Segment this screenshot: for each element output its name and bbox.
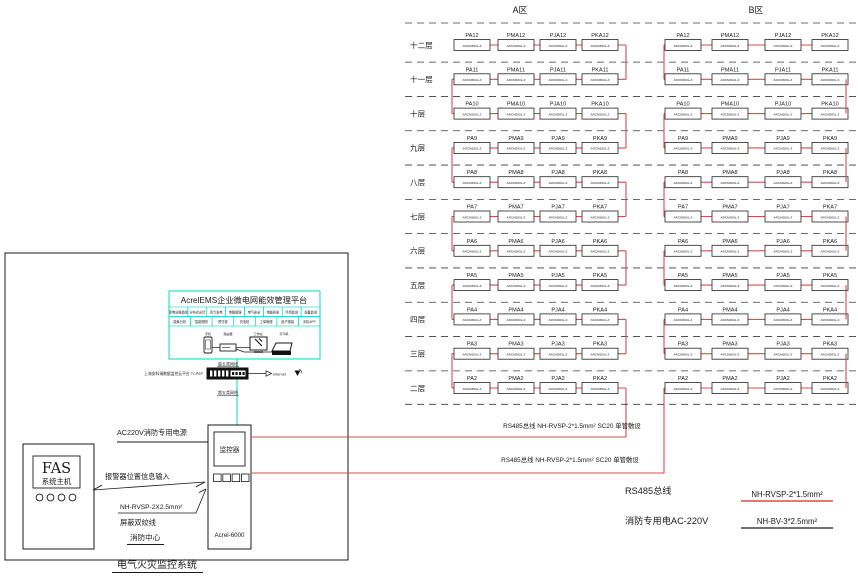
device-model-label: ARCM300L-Z bbox=[821, 250, 840, 254]
device-model-label: ARCM300L-Z bbox=[591, 181, 610, 185]
device-label: PKA2 bbox=[823, 376, 837, 382]
device-model-label: ARCM300L-Z bbox=[463, 181, 482, 185]
left-system: 电气火灾监控系统 AcrelEMS企业微电网能效管理平台 变电运维监控分布式光伏… bbox=[5, 253, 348, 573]
module-label: 工单管理 bbox=[260, 319, 274, 324]
printer-icon bbox=[272, 343, 292, 351]
device-model-label: ARCM300L-Z bbox=[463, 215, 482, 219]
device-model-label: ARCM300L-Z bbox=[507, 215, 526, 219]
device-model-label: ARCM300L-Z bbox=[721, 147, 740, 151]
device-label: PMA6 bbox=[722, 239, 737, 245]
device-label: PJA11 bbox=[550, 67, 566, 73]
module-label: 手机APP bbox=[303, 319, 316, 324]
module-label: 智能照明 bbox=[195, 319, 208, 324]
device-label: PJA7 bbox=[776, 205, 789, 211]
floor-label: 十层 bbox=[410, 108, 426, 118]
device-model-label: ARCM300L-Z bbox=[591, 387, 610, 391]
bus1-label: RS485总线 NH-RVSP-2*1.5mm² SC20 单管敷设 bbox=[503, 421, 641, 430]
device-label: PA4 bbox=[467, 307, 477, 313]
platform-devices: 手机路由器工作站打印机 bbox=[204, 331, 292, 355]
device-model-label: ARCM300L-Z bbox=[507, 44, 526, 48]
device-model-label: ARCM300L-Z bbox=[507, 112, 526, 116]
indicator-circle-icon bbox=[36, 494, 43, 501]
device-label: PKA5 bbox=[823, 273, 837, 279]
device-label: PMA10 bbox=[507, 102, 525, 108]
platform-device-label: 手机 bbox=[205, 331, 211, 336]
device-label: PKA11 bbox=[822, 67, 839, 73]
device-model-label: ARCM300L-Z bbox=[463, 44, 482, 48]
device-label: PJA3 bbox=[776, 342, 789, 348]
legend-power-label: 消防专用电AC-220V bbox=[625, 515, 709, 526]
device-label: PJA4 bbox=[776, 307, 789, 313]
device-model-label: ARCM300L-Z bbox=[674, 147, 693, 151]
wifi-icon bbox=[295, 369, 303, 376]
device-model-label: ARCM300L-Z bbox=[591, 215, 610, 219]
device-label: PJA12 bbox=[775, 33, 791, 39]
device-label: PA10 bbox=[676, 102, 689, 108]
device-model-label: ARCM300L-Z bbox=[463, 112, 482, 116]
device-label: PKA3 bbox=[823, 342, 837, 348]
device-model-label: ARCM300L-Z bbox=[507, 250, 526, 254]
device-model-label: ARCM300L-Z bbox=[507, 147, 526, 151]
device-label: PKA6 bbox=[823, 239, 837, 245]
device-model-label: ARCM300L-Z bbox=[821, 353, 840, 357]
device-label: PA11 bbox=[466, 67, 479, 73]
device-model-label: ARCM300L-Z bbox=[721, 284, 740, 288]
device-model-label: ARCM300L-Z bbox=[721, 318, 740, 322]
device-model-label: ARCM300L-Z bbox=[591, 250, 610, 254]
device-label: PMA10 bbox=[721, 102, 739, 108]
switch-port-icon bbox=[218, 371, 220, 377]
module-label: 设备监测 bbox=[304, 310, 317, 315]
device-label: PKA7 bbox=[823, 205, 837, 211]
cable-label-top: 超五类网线 bbox=[218, 361, 238, 367]
module-label: 预付费 bbox=[218, 319, 228, 324]
device-label: PA7 bbox=[467, 205, 477, 211]
device-model-label: ARCM300L-Z bbox=[774, 387, 793, 391]
device-label: PMA8 bbox=[722, 170, 737, 176]
device-model-label: ARCM300L-Z bbox=[674, 78, 693, 82]
device-label: PKA8 bbox=[823, 170, 837, 176]
device-label: PMA5 bbox=[722, 273, 737, 279]
floor-label: 六层 bbox=[410, 246, 426, 256]
device-model-label: ARCM300L-Z bbox=[821, 112, 840, 116]
device-label: PA3 bbox=[467, 342, 477, 348]
device-label: PKA5 bbox=[593, 273, 607, 279]
floor-label: 三层 bbox=[410, 350, 426, 359]
legend-power-cable-label: NH-BV-3*2.5mm² bbox=[757, 517, 818, 526]
device-label: PA7 bbox=[678, 205, 688, 211]
floor-label: 五层 bbox=[410, 281, 426, 290]
device-model-label: ARCM300L-Z bbox=[821, 284, 840, 288]
device-label: PMA9 bbox=[508, 136, 523, 142]
device-label: PKA9 bbox=[593, 136, 607, 142]
device-label: PMA2 bbox=[508, 376, 523, 382]
device-label: PMA5 bbox=[508, 273, 523, 279]
arrow-icon bbox=[266, 371, 272, 376]
module-label: 电能管理 bbox=[229, 310, 243, 315]
ac220-label: AC220V消防专用电源 bbox=[117, 428, 187, 437]
system-title: 电气火灾监控系统 bbox=[117, 558, 197, 571]
device-label: PKA6 bbox=[593, 239, 607, 245]
module-label: 分布式光伏 bbox=[189, 310, 206, 315]
device-model-label: ARCM300L-Z bbox=[774, 112, 793, 116]
device-model-label: ARCM300L-Z bbox=[591, 78, 610, 82]
device-model-label: ARCM300L-Z bbox=[463, 78, 482, 82]
device-model-label: ARCM300L-Z bbox=[674, 318, 693, 322]
device-label: PA6 bbox=[678, 239, 688, 245]
device-label: PA6 bbox=[467, 239, 477, 245]
bus2-label: RS485总线 NH-RVSP-2*1.5mm² SC20 单管敷设 bbox=[501, 455, 639, 464]
phone-icon bbox=[204, 337, 212, 353]
device-model-label: ARCM300L-Z bbox=[463, 147, 482, 151]
device-model-label: ARCM300L-Z bbox=[821, 78, 840, 82]
device-model-label: ARCM300L-Z bbox=[507, 284, 526, 288]
device-model-label: ARCM300L-Z bbox=[507, 318, 526, 322]
device-label: PMA12 bbox=[507, 33, 525, 39]
device-model-label: ARCM300L-Z bbox=[549, 181, 568, 185]
internet-label: Internet bbox=[273, 373, 287, 377]
device-model-label: ARCM300L-Z bbox=[774, 284, 793, 288]
platform-device-label: 路由器 bbox=[223, 331, 232, 336]
fire-center-label: 消防中心 bbox=[130, 532, 161, 542]
device-label: PKA2 bbox=[593, 376, 607, 382]
device-model-label: ARCM300L-Z bbox=[549, 318, 568, 322]
fas-subtitle: 系统主机 bbox=[42, 477, 72, 486]
device-label: PKA4 bbox=[823, 307, 837, 313]
module-label: 电气安全 bbox=[248, 310, 262, 315]
device-model-label: ARCM300L-Z bbox=[721, 387, 740, 391]
indicator-circle-icon bbox=[58, 494, 65, 501]
device-model-label: ARCM300L-Z bbox=[821, 181, 840, 185]
platform-device-label: 打印机 bbox=[279, 331, 288, 336]
device-model-label: ARCM300L-Z bbox=[674, 353, 693, 357]
device-label: PMA4 bbox=[508, 307, 523, 313]
floor-label: 十一层 bbox=[410, 74, 433, 84]
device-label: PJA2 bbox=[551, 376, 564, 382]
device-label: PJA8 bbox=[776, 170, 789, 176]
cable-spec-label: NH-RVSP-2X2.5mm² bbox=[120, 504, 183, 511]
module-label: 能耗分析 bbox=[173, 319, 187, 324]
device-model-label: ARCM300L-Z bbox=[549, 112, 568, 116]
zone-b-header: B区 bbox=[749, 5, 764, 15]
device-model-label: ARCM300L-Z bbox=[774, 181, 793, 185]
device-model-label: ARCM300L-Z bbox=[721, 181, 740, 185]
monitor-screen-label: 监控器 bbox=[220, 445, 240, 454]
cable-label-bottom: 超五类网线 bbox=[218, 389, 238, 395]
device-label: PJA11 bbox=[775, 67, 791, 73]
device-label: PA5 bbox=[467, 273, 477, 279]
device-model-label: ARCM300L-Z bbox=[591, 112, 610, 116]
module-label: 用户报装 bbox=[281, 319, 295, 324]
floor-label: 七层 bbox=[410, 212, 426, 221]
device-model-label: ARCM300L-Z bbox=[774, 353, 793, 357]
switch-port-icon bbox=[214, 371, 216, 377]
indicator-circle-icon bbox=[69, 494, 76, 501]
device-label: PJA6 bbox=[776, 239, 789, 245]
device-model-label: ARCM300L-Z bbox=[821, 318, 840, 322]
legend: RS485总线 消防专用电AC-220V NH-RVSP-2*1.5mm² NH… bbox=[625, 485, 833, 528]
acrel-ems-platform: AcrelEMS企业微电网能效管理平台 变电运维监控分布式光伏风力发电电能管理电… bbox=[169, 291, 320, 359]
device-model-label: ARCM300L-Z bbox=[463, 387, 482, 391]
device-model-label: ARCM300L-Z bbox=[549, 147, 568, 151]
device-model-label: ARCM300L-Z bbox=[463, 250, 482, 254]
device-model-label: ARCM300L-Z bbox=[721, 44, 740, 48]
device-model-label: ARCM300L-Z bbox=[507, 78, 526, 82]
switch-port-icon bbox=[236, 372, 238, 375]
diagram-canvas: 电气火灾监控系统 AcrelEMS企业微电网能效管理平台 变电运维监控分布式光伏… bbox=[0, 0, 858, 582]
device-model-label: ARCM300L-Z bbox=[674, 215, 693, 219]
switch-port-icon bbox=[226, 371, 228, 377]
floor-label: 九层 bbox=[410, 144, 426, 153]
device-label: PJA9 bbox=[551, 136, 564, 142]
device-label: PMA9 bbox=[722, 136, 737, 142]
device-label: PJA2 bbox=[776, 376, 789, 382]
switch-port-icon bbox=[239, 372, 241, 375]
device-model-label: ARCM300L-Z bbox=[774, 318, 793, 322]
indicator-circle-icon bbox=[47, 494, 54, 501]
floor-label: 二层 bbox=[410, 384, 426, 393]
device-label: PA8 bbox=[678, 170, 688, 176]
device-model-label: ARCM300L-Z bbox=[821, 387, 840, 391]
device-label: PKA12 bbox=[821, 33, 838, 39]
device-model-label: ARCM300L-Z bbox=[674, 250, 693, 254]
device-label: PA9 bbox=[678, 136, 688, 142]
device-model-label: ARCM300L-Z bbox=[774, 78, 793, 82]
device-label: PA2 bbox=[467, 376, 477, 382]
device-model-label: ARCM300L-Z bbox=[774, 215, 793, 219]
floor-label: 四层 bbox=[410, 315, 426, 324]
device-model-label: ARCM300L-Z bbox=[507, 353, 526, 357]
device-model-label: ARCM300L-Z bbox=[507, 387, 526, 391]
device-label: PA3 bbox=[678, 342, 688, 348]
device-label: PMA7 bbox=[722, 205, 737, 211]
device-model-label: ARCM300L-Z bbox=[549, 215, 568, 219]
printer-base-icon bbox=[272, 351, 291, 355]
fas-host: FAS 系统主机 bbox=[23, 444, 94, 549]
device-label: PJA5 bbox=[551, 273, 564, 279]
device-label: PKA11 bbox=[592, 67, 609, 73]
device-label: PA4 bbox=[678, 307, 688, 313]
device-label: PMA7 bbox=[508, 205, 523, 211]
device-label: PMA11 bbox=[721, 67, 739, 73]
device-model-label: ARCM300L-Z bbox=[821, 44, 840, 48]
device-model-label: ARCM300L-Z bbox=[591, 353, 610, 357]
device-model-label: ARCM300L-Z bbox=[591, 284, 610, 288]
device-label: PJA4 bbox=[551, 307, 564, 313]
device-model-label: ARCM300L-Z bbox=[591, 147, 610, 151]
device-model-label: ARCM300L-Z bbox=[507, 181, 526, 185]
device-model-label: ARCM300L-Z bbox=[549, 44, 568, 48]
shielded-pair-label: 屏蔽双绞线 bbox=[120, 518, 156, 527]
module-label: 充电桩 bbox=[240, 319, 250, 324]
platform-module-grid: 变电运维监控分布式光伏风力发电电能管理电气安全电能质量环境监测设备监测能耗分析智… bbox=[169, 307, 320, 326]
device-model-label: ARCM300L-Z bbox=[721, 250, 740, 254]
device-model-label: ARCM300L-Z bbox=[774, 147, 793, 151]
device-model-label: ARCM300L-Z bbox=[674, 44, 693, 48]
legend-rs485-label: RS485总线 bbox=[625, 485, 671, 496]
platform-title: AcrelEMS企业微电网能效管理平台 bbox=[181, 295, 307, 305]
device-label: PKA7 bbox=[593, 205, 607, 211]
device-label: PA11 bbox=[677, 67, 690, 73]
monitor-acrel6000: 监控器 Acrel-6000 bbox=[208, 425, 251, 549]
monitor-icon bbox=[250, 337, 267, 350]
platform-device-label: 工作站 bbox=[253, 331, 262, 336]
device-model-label: ARCM300L-Z bbox=[674, 387, 693, 391]
switch-port-icon bbox=[222, 371, 224, 377]
device-model-label: ARCM300L-Z bbox=[821, 147, 840, 151]
device-label: PMA4 bbox=[722, 307, 737, 313]
device-label: PMA3 bbox=[722, 342, 737, 348]
device-label: PKA8 bbox=[593, 170, 607, 176]
device-label: PJA7 bbox=[551, 205, 564, 211]
monitor-model-label: Acrel-6000 bbox=[215, 532, 245, 539]
device-model-label: ARCM300L-Z bbox=[721, 78, 740, 82]
module-label: 变电运维监控 bbox=[169, 310, 189, 315]
device-label: PKA9 bbox=[823, 136, 837, 142]
device-model-label: ARCM300L-Z bbox=[549, 353, 568, 357]
device-label: PMA11 bbox=[507, 67, 525, 73]
module-label: 风力发电 bbox=[210, 310, 224, 315]
device-label: PJA5 bbox=[776, 273, 789, 279]
device-label: PJA10 bbox=[775, 102, 791, 108]
device-label: PJA3 bbox=[551, 342, 564, 348]
device-label: PJA8 bbox=[551, 170, 564, 176]
device-model-label: ARCM300L-Z bbox=[721, 353, 740, 357]
device-label: PMA3 bbox=[508, 342, 523, 348]
module-label: 电能质量 bbox=[266, 310, 280, 315]
fas-name: FAS bbox=[42, 461, 71, 477]
device-label: PKA3 bbox=[593, 342, 607, 348]
device-model-label: ARCM300L-Z bbox=[463, 318, 482, 322]
device-label: PA12 bbox=[465, 33, 478, 39]
device-model-label: ARCM300L-Z bbox=[591, 44, 610, 48]
device-label: PMA6 bbox=[508, 239, 523, 245]
network-switch: 超五类网线 bbox=[207, 361, 248, 380]
device-label: PA5 bbox=[678, 273, 688, 279]
device-label: PA12 bbox=[676, 33, 689, 39]
floor-label: 八层 bbox=[410, 178, 426, 187]
floor-label: 十二层 bbox=[410, 40, 433, 50]
device-model-label: ARCM300L-Z bbox=[774, 44, 793, 48]
device-label: PKA10 bbox=[821, 102, 838, 108]
switch-port-icon bbox=[210, 371, 212, 377]
legend-rs485-cable-label: NH-RVSP-2*1.5mm² bbox=[751, 490, 823, 499]
device-model-label: ARCM300L-Z bbox=[774, 250, 793, 254]
zone-a-header: A区 bbox=[513, 5, 528, 15]
device-model-label: ARCM300L-Z bbox=[674, 112, 693, 116]
switch-port-icon bbox=[232, 372, 234, 375]
device-label: PJA9 bbox=[776, 136, 789, 142]
device-model-label: ARCM300L-Z bbox=[674, 181, 693, 185]
device-model-label: ARCM300L-Z bbox=[549, 387, 568, 391]
device-label: PMA8 bbox=[508, 170, 523, 176]
device-label: PA10 bbox=[465, 102, 478, 108]
device-model-label: ARCM300L-Z bbox=[463, 284, 482, 288]
device-label: PA2 bbox=[678, 376, 688, 382]
device-label: PMA12 bbox=[721, 33, 739, 39]
device-model-label: ARCM300L-Z bbox=[549, 250, 568, 254]
alarm-signal-line bbox=[93, 482, 205, 490]
device-model-label: ARCM300L-Z bbox=[463, 353, 482, 357]
device-model-label: ARCM300L-Z bbox=[549, 284, 568, 288]
device-label: PJA10 bbox=[550, 102, 566, 108]
device-model-label: ARCM300L-Z bbox=[674, 284, 693, 288]
device-label: PA9 bbox=[467, 136, 477, 142]
device-model-label: ARCM300L-Z bbox=[591, 318, 610, 322]
device-label: PMA2 bbox=[722, 376, 737, 382]
device-label: PA8 bbox=[467, 170, 477, 176]
device-label: PKA12 bbox=[591, 33, 608, 39]
switch-port-icon bbox=[243, 372, 245, 375]
device-model-label: ARCM300L-Z bbox=[721, 112, 740, 116]
upload-note: 上海安科瑞数据监控云平台 TCP/IP bbox=[144, 371, 203, 376]
device-label: PJA12 bbox=[550, 33, 566, 39]
floor-device-grid: 十二层PA12ARCM300L-ZPMA12ARCM300L-ZPJA12ARC… bbox=[405, 23, 857, 404]
electrical-fire-monitoring-diagram: 电气火灾监控系统 AcrelEMS企业微电网能效管理平台 变电运维监控分布式光伏… bbox=[0, 0, 858, 582]
device-model-label: ARCM300L-Z bbox=[821, 215, 840, 219]
device-label: PKA4 bbox=[593, 307, 607, 313]
device-model-label: ARCM300L-Z bbox=[721, 215, 740, 219]
module-label: 环境监测 bbox=[285, 310, 298, 315]
rs485-buses: RS485总线 NH-RVSP-2*1.5mm² SC20 单管敷设 RS485… bbox=[251, 388, 664, 473]
device-label: PKA10 bbox=[591, 102, 608, 108]
alarm-input-label: 报警器位置信息输入 bbox=[105, 472, 170, 481]
device-label: PJA6 bbox=[551, 239, 564, 245]
device-model-label: ARCM300L-Z bbox=[549, 78, 568, 82]
